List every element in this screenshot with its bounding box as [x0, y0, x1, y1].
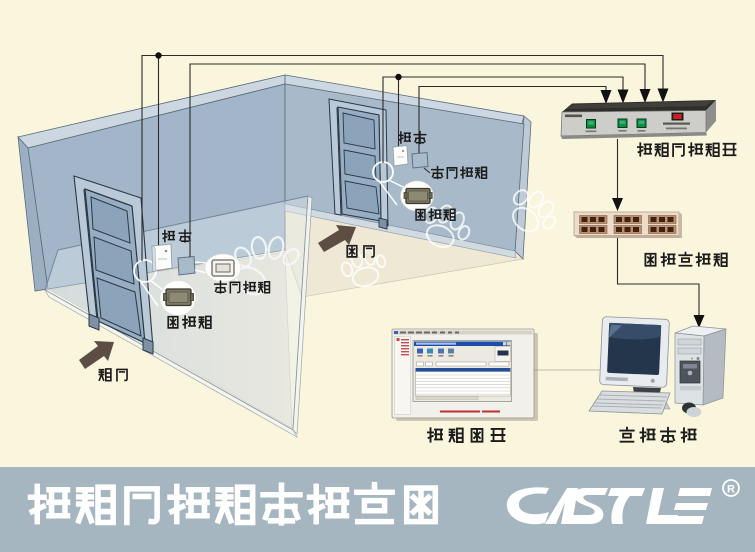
svg-text:R: R — [727, 484, 735, 496]
